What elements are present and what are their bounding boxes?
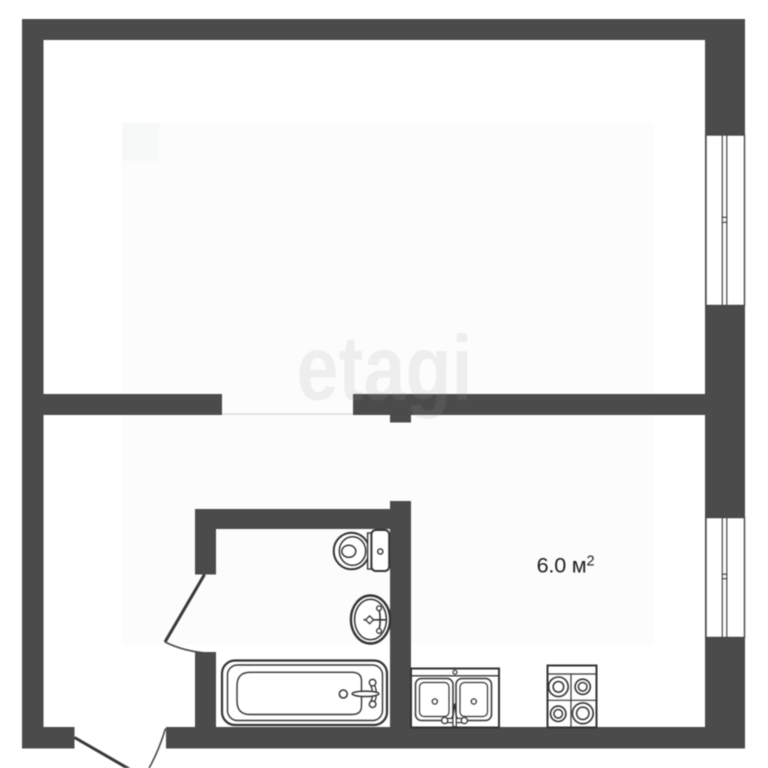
svg-text:etagi: etagi xyxy=(296,316,472,419)
svg-text:6.0 м2: 6.0 м2 xyxy=(537,553,595,578)
